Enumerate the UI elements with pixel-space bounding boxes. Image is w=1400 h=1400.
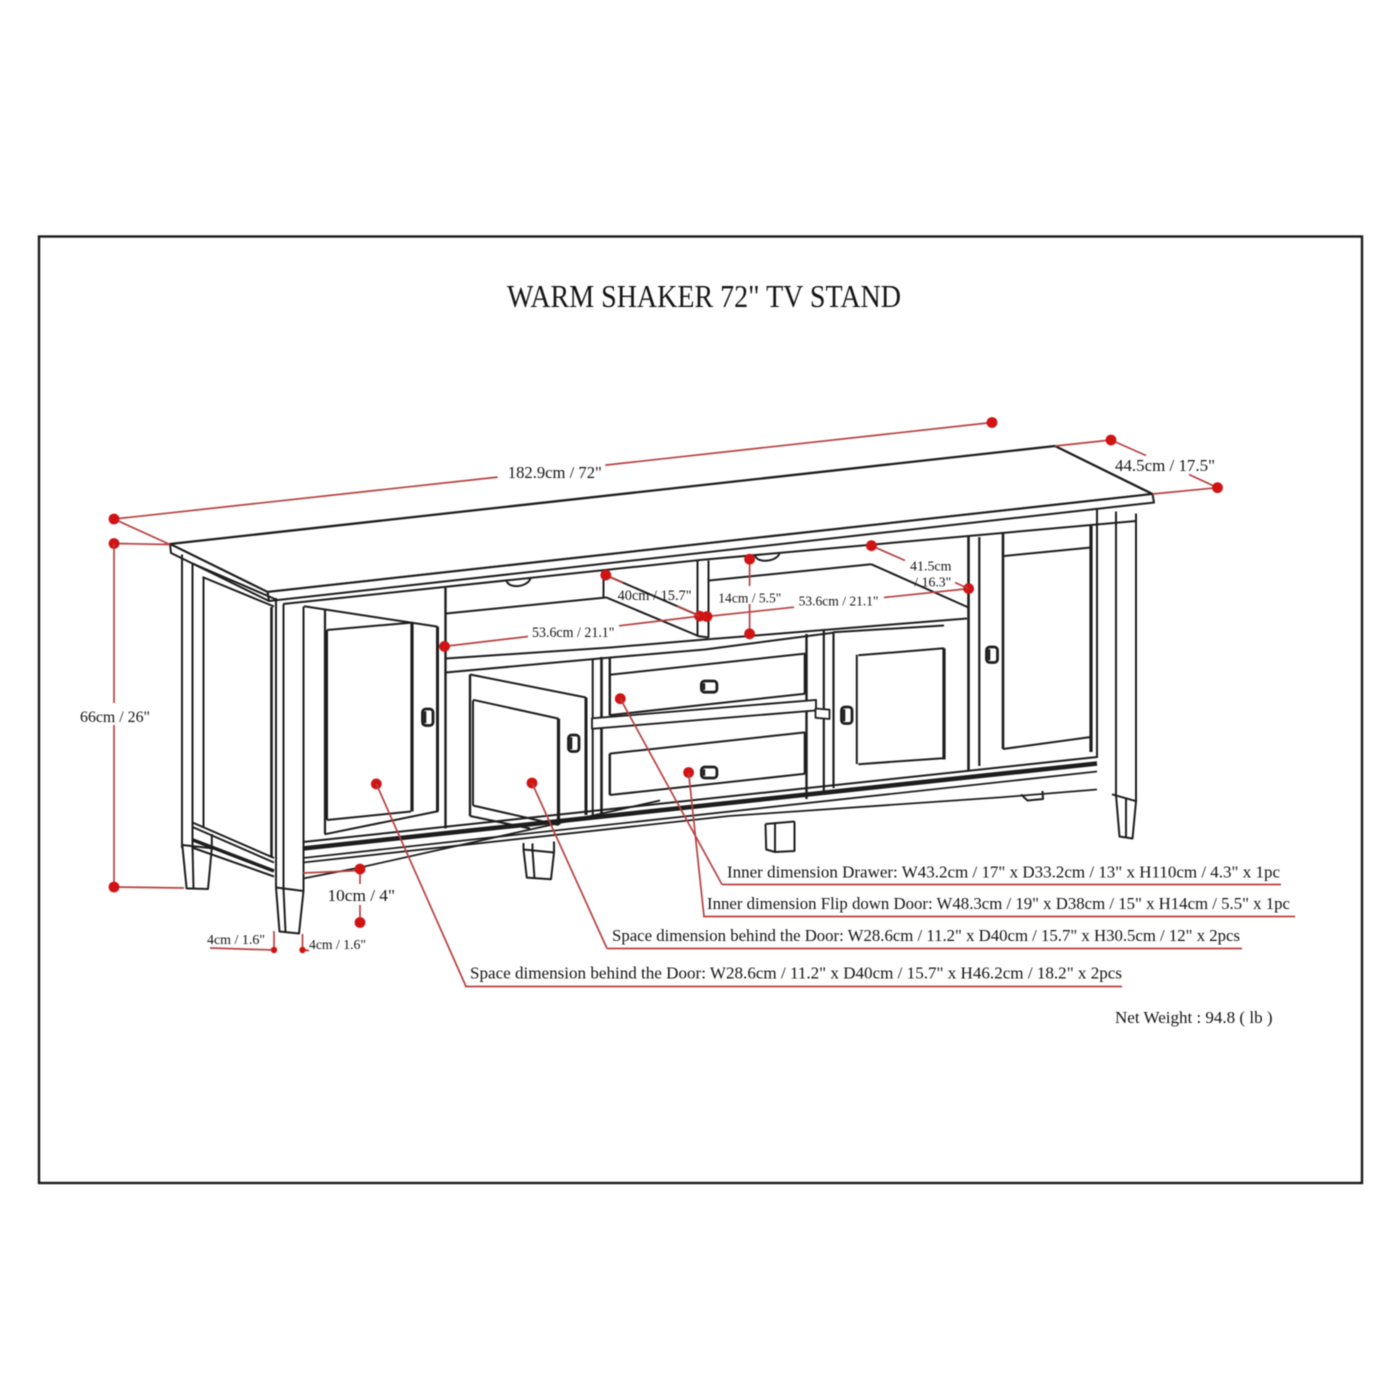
svg-text:40cm / 15.7": 40cm / 15.7" (618, 588, 692, 604)
svg-text:14cm / 5.5": 14cm / 5.5" (718, 591, 781, 606)
svg-text:44.5cm / 17.5": 44.5cm / 17.5" (1115, 456, 1215, 475)
svg-text:Space dimension behind the Doo: Space dimension behind the Door: W28.6cm… (470, 964, 1122, 983)
svg-text:Space dimension behind the Doo: Space dimension behind the Door: W28.6cm… (612, 926, 1240, 945)
svg-text:41.5cm: 41.5cm (910, 560, 952, 575)
svg-text:53.6cm / 21.1": 53.6cm / 21.1" (799, 594, 879, 609)
svg-text:Inner dimension Flip down Door: Inner dimension Flip down Door: W48.3cm … (707, 894, 1290, 913)
svg-text:182.9cm / 72": 182.9cm / 72" (508, 463, 602, 482)
svg-text:66cm / 26": 66cm / 26" (80, 709, 150, 726)
svg-text:4cm / 1.6": 4cm / 1.6" (309, 937, 366, 952)
svg-text:10cm / 4": 10cm / 4" (328, 886, 396, 905)
svg-text:Inner dimension Drawer: W43.2c: Inner dimension Drawer: W43.2cm / 17" x … (727, 863, 1280, 882)
svg-text:Net Weight : 94.8 ( lb ): Net Weight : 94.8 ( lb ) (1115, 1008, 1273, 1027)
svg-text:53.6cm / 21.1": 53.6cm / 21.1" (532, 625, 615, 641)
svg-text:WARM SHAKER 72" TV STAND: WARM SHAKER 72" TV STAND (507, 278, 901, 314)
svg-text:/ 16.3": / 16.3" (914, 575, 951, 590)
svg-text:4cm / 1.6": 4cm / 1.6" (207, 933, 265, 948)
